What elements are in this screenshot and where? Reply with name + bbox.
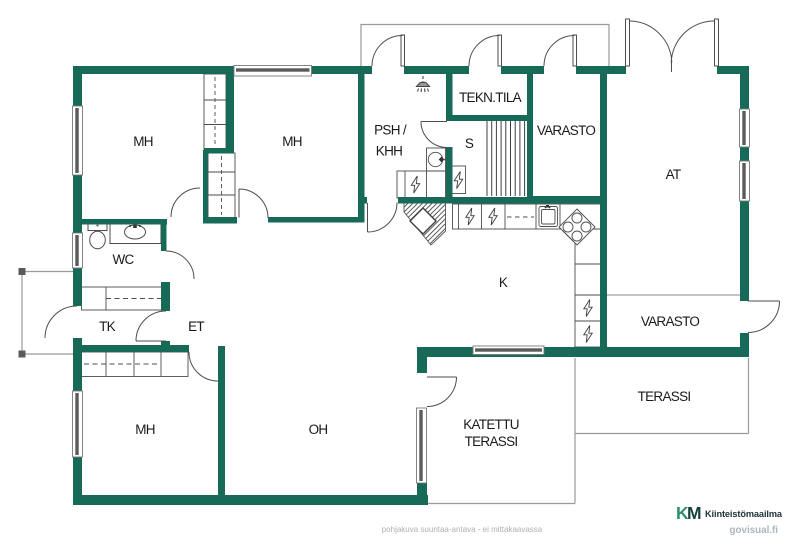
svg-text:PSH /: PSH / <box>374 123 407 138</box>
svg-text:TERASSI: TERASSI <box>465 434 518 449</box>
svg-text:OH: OH <box>309 422 328 437</box>
svg-text:K: K <box>499 275 508 290</box>
svg-text:TEKN.TILA: TEKN.TILA <box>459 90 522 105</box>
svg-text:MH: MH <box>133 134 153 149</box>
svg-text:Kiinteistömaailma: Kiinteistömaailma <box>705 509 783 519</box>
svg-text:MH: MH <box>135 422 155 437</box>
svg-text:M: M <box>687 503 701 523</box>
svg-text:WC: WC <box>112 252 134 267</box>
svg-text:TERASSI: TERASSI <box>638 389 691 404</box>
svg-text:VARASTO: VARASTO <box>537 123 596 138</box>
svg-text:MH: MH <box>282 134 302 149</box>
svg-text:TK: TK <box>99 319 116 334</box>
svg-text:KATETTU: KATETTU <box>463 417 519 432</box>
svg-text:pohjakuva suuntaa-antava - ei: pohjakuva suuntaa-antava - ei mittakaava… <box>382 525 543 534</box>
svg-text:govisual.fi: govisual.fi <box>730 525 779 536</box>
svg-text:AT: AT <box>666 167 681 182</box>
svg-text:VARASTO: VARASTO <box>641 314 700 329</box>
svg-text:ET: ET <box>188 319 204 334</box>
svg-text:KHH: KHH <box>376 144 402 159</box>
svg-text:S: S <box>465 136 474 151</box>
